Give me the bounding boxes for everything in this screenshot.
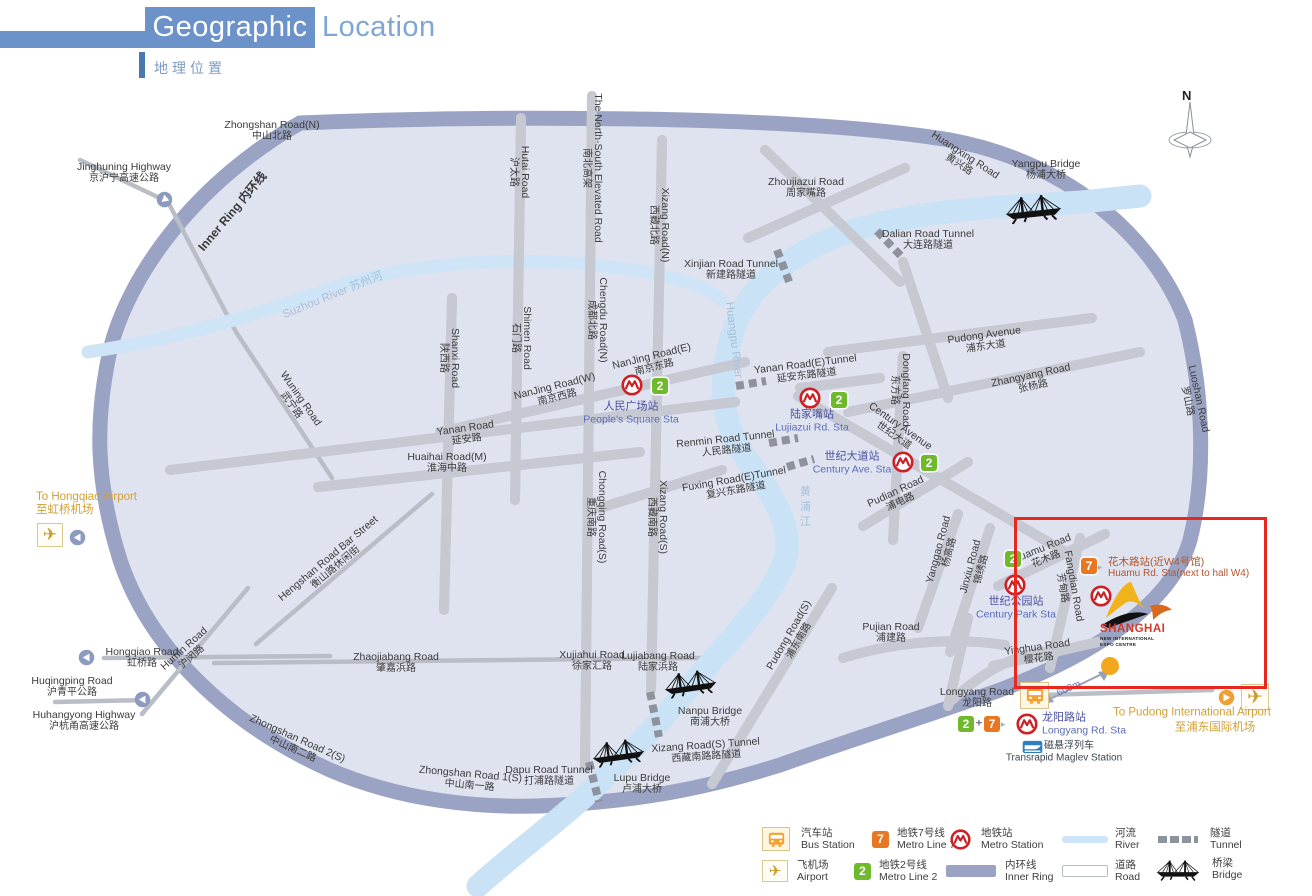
maglev-icon <box>1022 740 1043 754</box>
bus-station-icon <box>762 827 794 851</box>
geographic-location-map-page: Geographic Location 地理位置 <box>0 0 1312 896</box>
river-swatch <box>1062 836 1108 843</box>
yangpu-bridge-icon <box>1002 189 1065 225</box>
legend-label-zh: 飞机场 <box>797 859 829 871</box>
legend-item-airport: ✈ 飞机场Airport <box>762 858 829 884</box>
legend-item-metro-line2: 2 地铁2号线Metro Line 2 <box>854 858 937 884</box>
legend-label-zh: 内环线 <box>1005 859 1053 871</box>
metro-station-icon-century-ave <box>892 451 914 473</box>
airport-icon: ✈ <box>762 860 790 882</box>
legend-label-en: Bridge <box>1212 869 1242 881</box>
legend-item-tunnel: 隧道Tunnel <box>1158 826 1242 852</box>
metro-station-icon-longyang <box>1016 713 1038 735</box>
legend-label-zh: 地铁7号线 <box>897 827 955 839</box>
arrow-circle-pudong-airport <box>1218 689 1235 706</box>
legend-label-zh: 地铁2号线 <box>879 859 937 871</box>
arrow-circle-huqingping <box>134 691 151 708</box>
compass-north-label: N <box>1182 88 1191 103</box>
metro-station-icon <box>950 829 974 850</box>
legend-label-en: Tunnel <box>1210 839 1242 851</box>
inner-ring-swatch <box>946 865 998 877</box>
legend-label-en: River <box>1115 839 1140 851</box>
legend-label-en: Bus Station <box>801 839 855 851</box>
legend-item-river: 河流River <box>1062 826 1140 852</box>
legend-label-en: Metro Line 7 <box>897 839 955 851</box>
legend-item-bridge: 桥梁Bridge <box>1155 856 1242 882</box>
legend-label-zh: 隧道 <box>1210 827 1242 839</box>
legend-label-en: Metro Line 2 <box>879 871 937 883</box>
legend-label-en: Airport <box>797 871 829 883</box>
legend-label-zh: 地铁站 <box>981 827 1043 839</box>
metro-line2-icon: 2 <box>854 863 872 880</box>
legend-item-metro-line7: 7 地铁7号线Metro Line 7 <box>872 826 955 852</box>
tunnel-swatch <box>1158 836 1203 843</box>
legend-item-metro-station: 地铁站Metro Station <box>950 826 1043 852</box>
metro-line7-icon: 7 <box>872 831 890 848</box>
bridge-icon <box>1155 857 1205 881</box>
legend-item-bus-station: 汽车站Bus Station <box>762 826 855 852</box>
arrow-circle-hongqiao-airport <box>69 529 86 546</box>
hongqiao-airport-icon: ✈ <box>37 523 63 547</box>
legend-label-zh: 河流 <box>1115 827 1140 839</box>
legend-label-en: Inner Ring <box>1005 871 1053 883</box>
road-swatch <box>1062 865 1108 877</box>
arrow-circle-hongqiao-road <box>78 649 95 666</box>
metro-station-icon-lujiazui <box>799 387 821 409</box>
legend-label-zh: 汽车站 <box>801 827 855 839</box>
legend-label-en: Road <box>1115 871 1140 883</box>
legend-item-inner-ring: 内环线Inner Ring <box>946 858 1053 884</box>
legend-label-zh: 道路 <box>1115 859 1140 871</box>
map-base-graphics <box>0 0 1312 896</box>
legend-label-zh: 桥梁 <box>1212 857 1242 869</box>
highlight-box-expo-area <box>1014 517 1267 689</box>
compass-star <box>1169 102 1211 157</box>
metro-station-icon-peoples-square <box>621 374 643 396</box>
legend-item-road: 道路Road <box>1062 858 1140 884</box>
legend-label-en: Metro Station <box>981 839 1043 851</box>
